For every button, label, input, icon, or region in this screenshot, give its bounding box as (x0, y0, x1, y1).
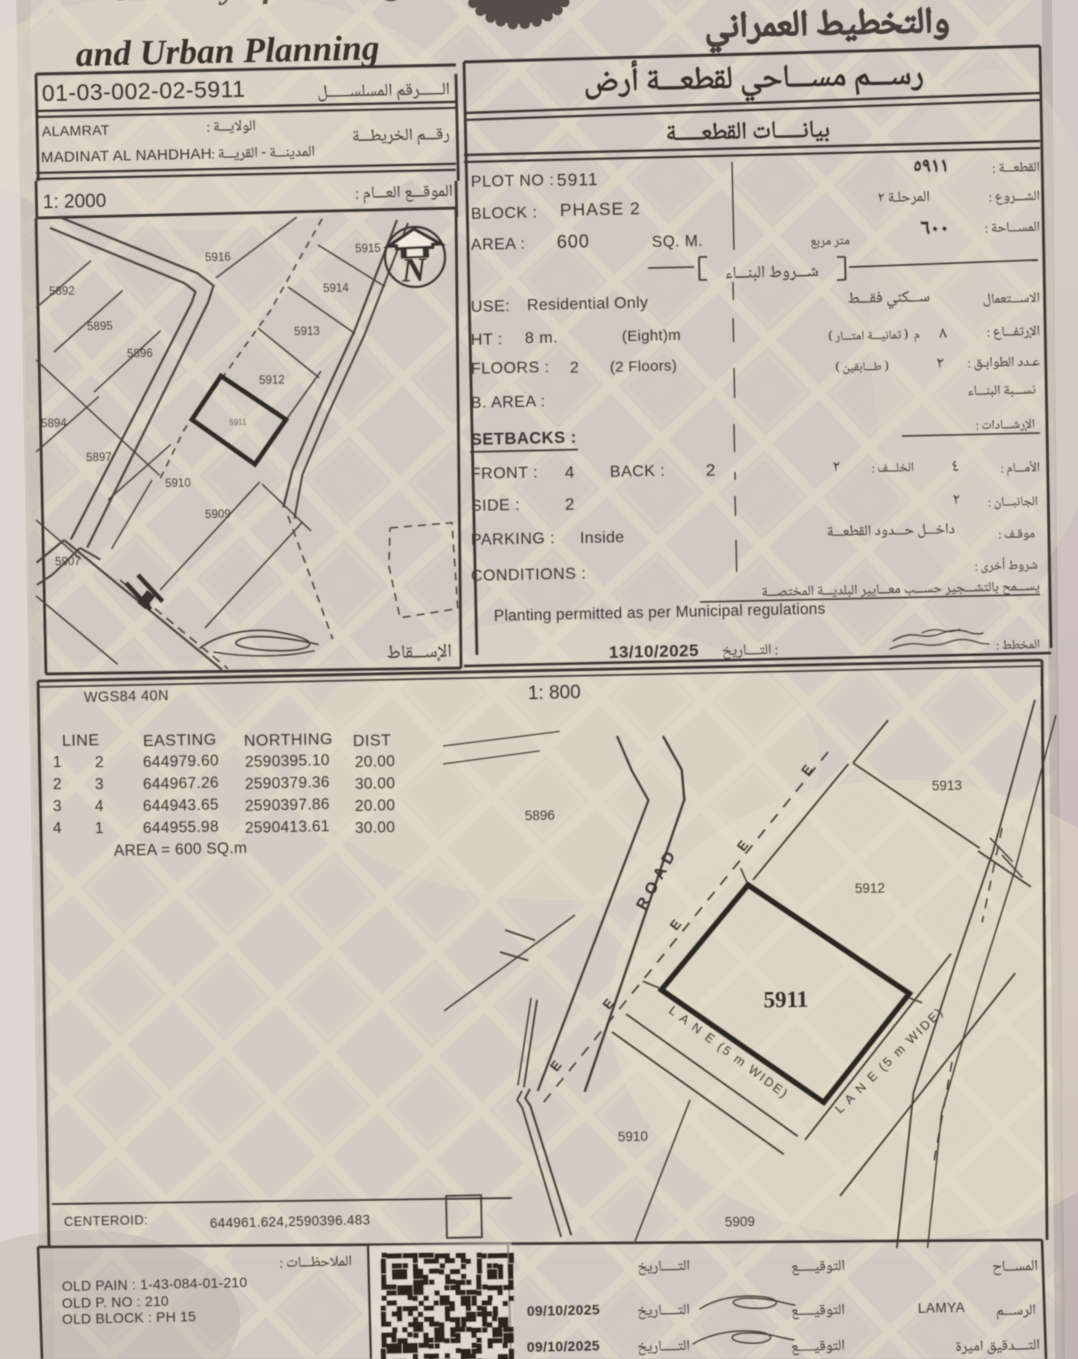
svg-text:5912: 5912 (259, 375, 285, 388)
svg-text:5911: 5911 (229, 418, 247, 427)
svg-text:BACK :: BACK : (610, 463, 666, 481)
svg-text:4: 4 (53, 820, 62, 837)
svg-text:B. AREA :: B. AREA : (471, 393, 546, 412)
svg-text:WGS84 40N: WGS84 40N (84, 688, 169, 706)
svg-text:30.00: 30.00 (355, 775, 396, 793)
svg-text:5894: 5894 (41, 418, 67, 431)
svg-text:5909: 5909 (725, 1214, 755, 1230)
svg-text:1: 2000: 1: 2000 (43, 191, 107, 213)
svg-text:5910: 5910 (618, 1129, 648, 1145)
svg-text:5911: 5911 (763, 987, 808, 1013)
svg-text:5915: 5915 (355, 243, 381, 256)
svg-text:5897: 5897 (86, 452, 112, 465)
svg-text:PHASE 2: PHASE 2 (560, 198, 641, 220)
svg-text:LINE: LINE (62, 732, 100, 750)
svg-text:4: 4 (565, 463, 575, 482)
svg-text:SIDE :: SIDE : (471, 497, 521, 515)
svg-text:PLOT NO :: PLOT NO : (471, 172, 555, 191)
svg-text:BLOCK :: BLOCK : (471, 205, 538, 223)
svg-text:5896: 5896 (127, 348, 153, 361)
svg-text:FRONT :: FRONT : (471, 465, 539, 483)
svg-text:5913: 5913 (294, 326, 320, 339)
svg-text:3: 3 (95, 776, 104, 793)
svg-text:SETBACKS :: SETBACKS : (471, 429, 577, 449)
svg-text:PARKING :: PARKING : (471, 530, 556, 549)
svg-text:SQ. M.: SQ. M. (652, 233, 704, 251)
svg-text:20.00: 20.00 (355, 753, 396, 771)
svg-text:644967.26: 644967.26 (143, 774, 219, 793)
svg-text:USE:: USE: (471, 298, 511, 316)
svg-text:5907: 5907 (55, 556, 81, 569)
svg-text:DIST: DIST (353, 732, 392, 750)
svg-text:5895: 5895 (87, 321, 113, 334)
svg-text:AREA :: AREA : (471, 236, 526, 254)
svg-text:5909: 5909 (205, 509, 231, 522)
svg-text:FLOORS :: FLOORS : (471, 359, 550, 378)
svg-text:NORTHING: NORTHING (244, 731, 333, 750)
svg-text:Inside: Inside (580, 529, 625, 547)
svg-text:30.00: 30.00 (355, 819, 396, 837)
svg-text:AREA = 600 SQ.m: AREA = 600 SQ.m (114, 840, 248, 860)
svg-text:3: 3 (53, 798, 62, 815)
svg-text:2590413.61: 2590413.61 (245, 818, 330, 837)
svg-text:5916: 5916 (205, 252, 231, 265)
svg-text:5910: 5910 (165, 478, 191, 491)
svg-text:CONDITIONS :: CONDITIONS : (471, 565, 587, 585)
svg-text:LAMYA: LAMYA (918, 1300, 966, 1316)
svg-text:(2 Floors): (2 Floors) (610, 358, 678, 376)
svg-text:20.00: 20.00 (355, 797, 396, 815)
svg-text:5912: 5912 (855, 881, 885, 897)
svg-text:2: 2 (95, 754, 104, 771)
svg-text:1: 1 (95, 820, 104, 837)
svg-text:HT :: HT : (471, 331, 503, 349)
svg-text:09/10/2025: 09/10/2025 (527, 1337, 600, 1355)
svg-text:1: 1 (53, 754, 62, 771)
svg-text:2590395.10: 2590395.10 (245, 752, 330, 771)
svg-text:2: 2 (53, 776, 62, 793)
svg-text:5913: 5913 (932, 778, 962, 794)
svg-text:(Eight)m: (Eight)m (622, 327, 681, 345)
svg-text:5914: 5914 (323, 283, 349, 296)
svg-text:8 m.: 8 m. (525, 329, 558, 347)
svg-text:2590397.86: 2590397.86 (245, 796, 330, 815)
svg-text:1: 800: 1: 800 (528, 682, 581, 704)
svg-text:OLD BLOCK : PH 15: OLD BLOCK : PH 15 (62, 1308, 196, 1327)
svg-text:5911: 5911 (557, 169, 599, 190)
svg-text:01-03-002-02-5911: 01-03-002-02-5911 (41, 76, 245, 106)
svg-text:644979.60: 644979.60 (143, 752, 219, 771)
svg-text:5892: 5892 (49, 286, 75, 299)
svg-text:CENTEROID:: CENTEROID: (64, 1212, 148, 1229)
svg-text:2: 2 (706, 461, 716, 480)
svg-text:N: N (400, 251, 429, 289)
svg-text:4: 4 (95, 798, 104, 815)
svg-text:2: 2 (570, 360, 579, 377)
svg-text:EASTING: EASTING (143, 731, 217, 750)
svg-text:644943.65: 644943.65 (143, 796, 219, 815)
svg-text:09/10/2025: 09/10/2025 (527, 1301, 600, 1319)
svg-text:2: 2 (565, 495, 575, 514)
svg-text:ALAMRAT: ALAMRAT (42, 122, 110, 139)
svg-text:5896: 5896 (525, 808, 555, 824)
svg-text:Residential Only: Residential Only (527, 294, 649, 314)
svg-text:600: 600 (557, 231, 590, 252)
svg-text:13/10/2025: 13/10/2025 (609, 641, 699, 662)
svg-text:644955.98: 644955.98 (143, 818, 219, 837)
svg-text:2590379.36: 2590379.36 (245, 774, 330, 793)
